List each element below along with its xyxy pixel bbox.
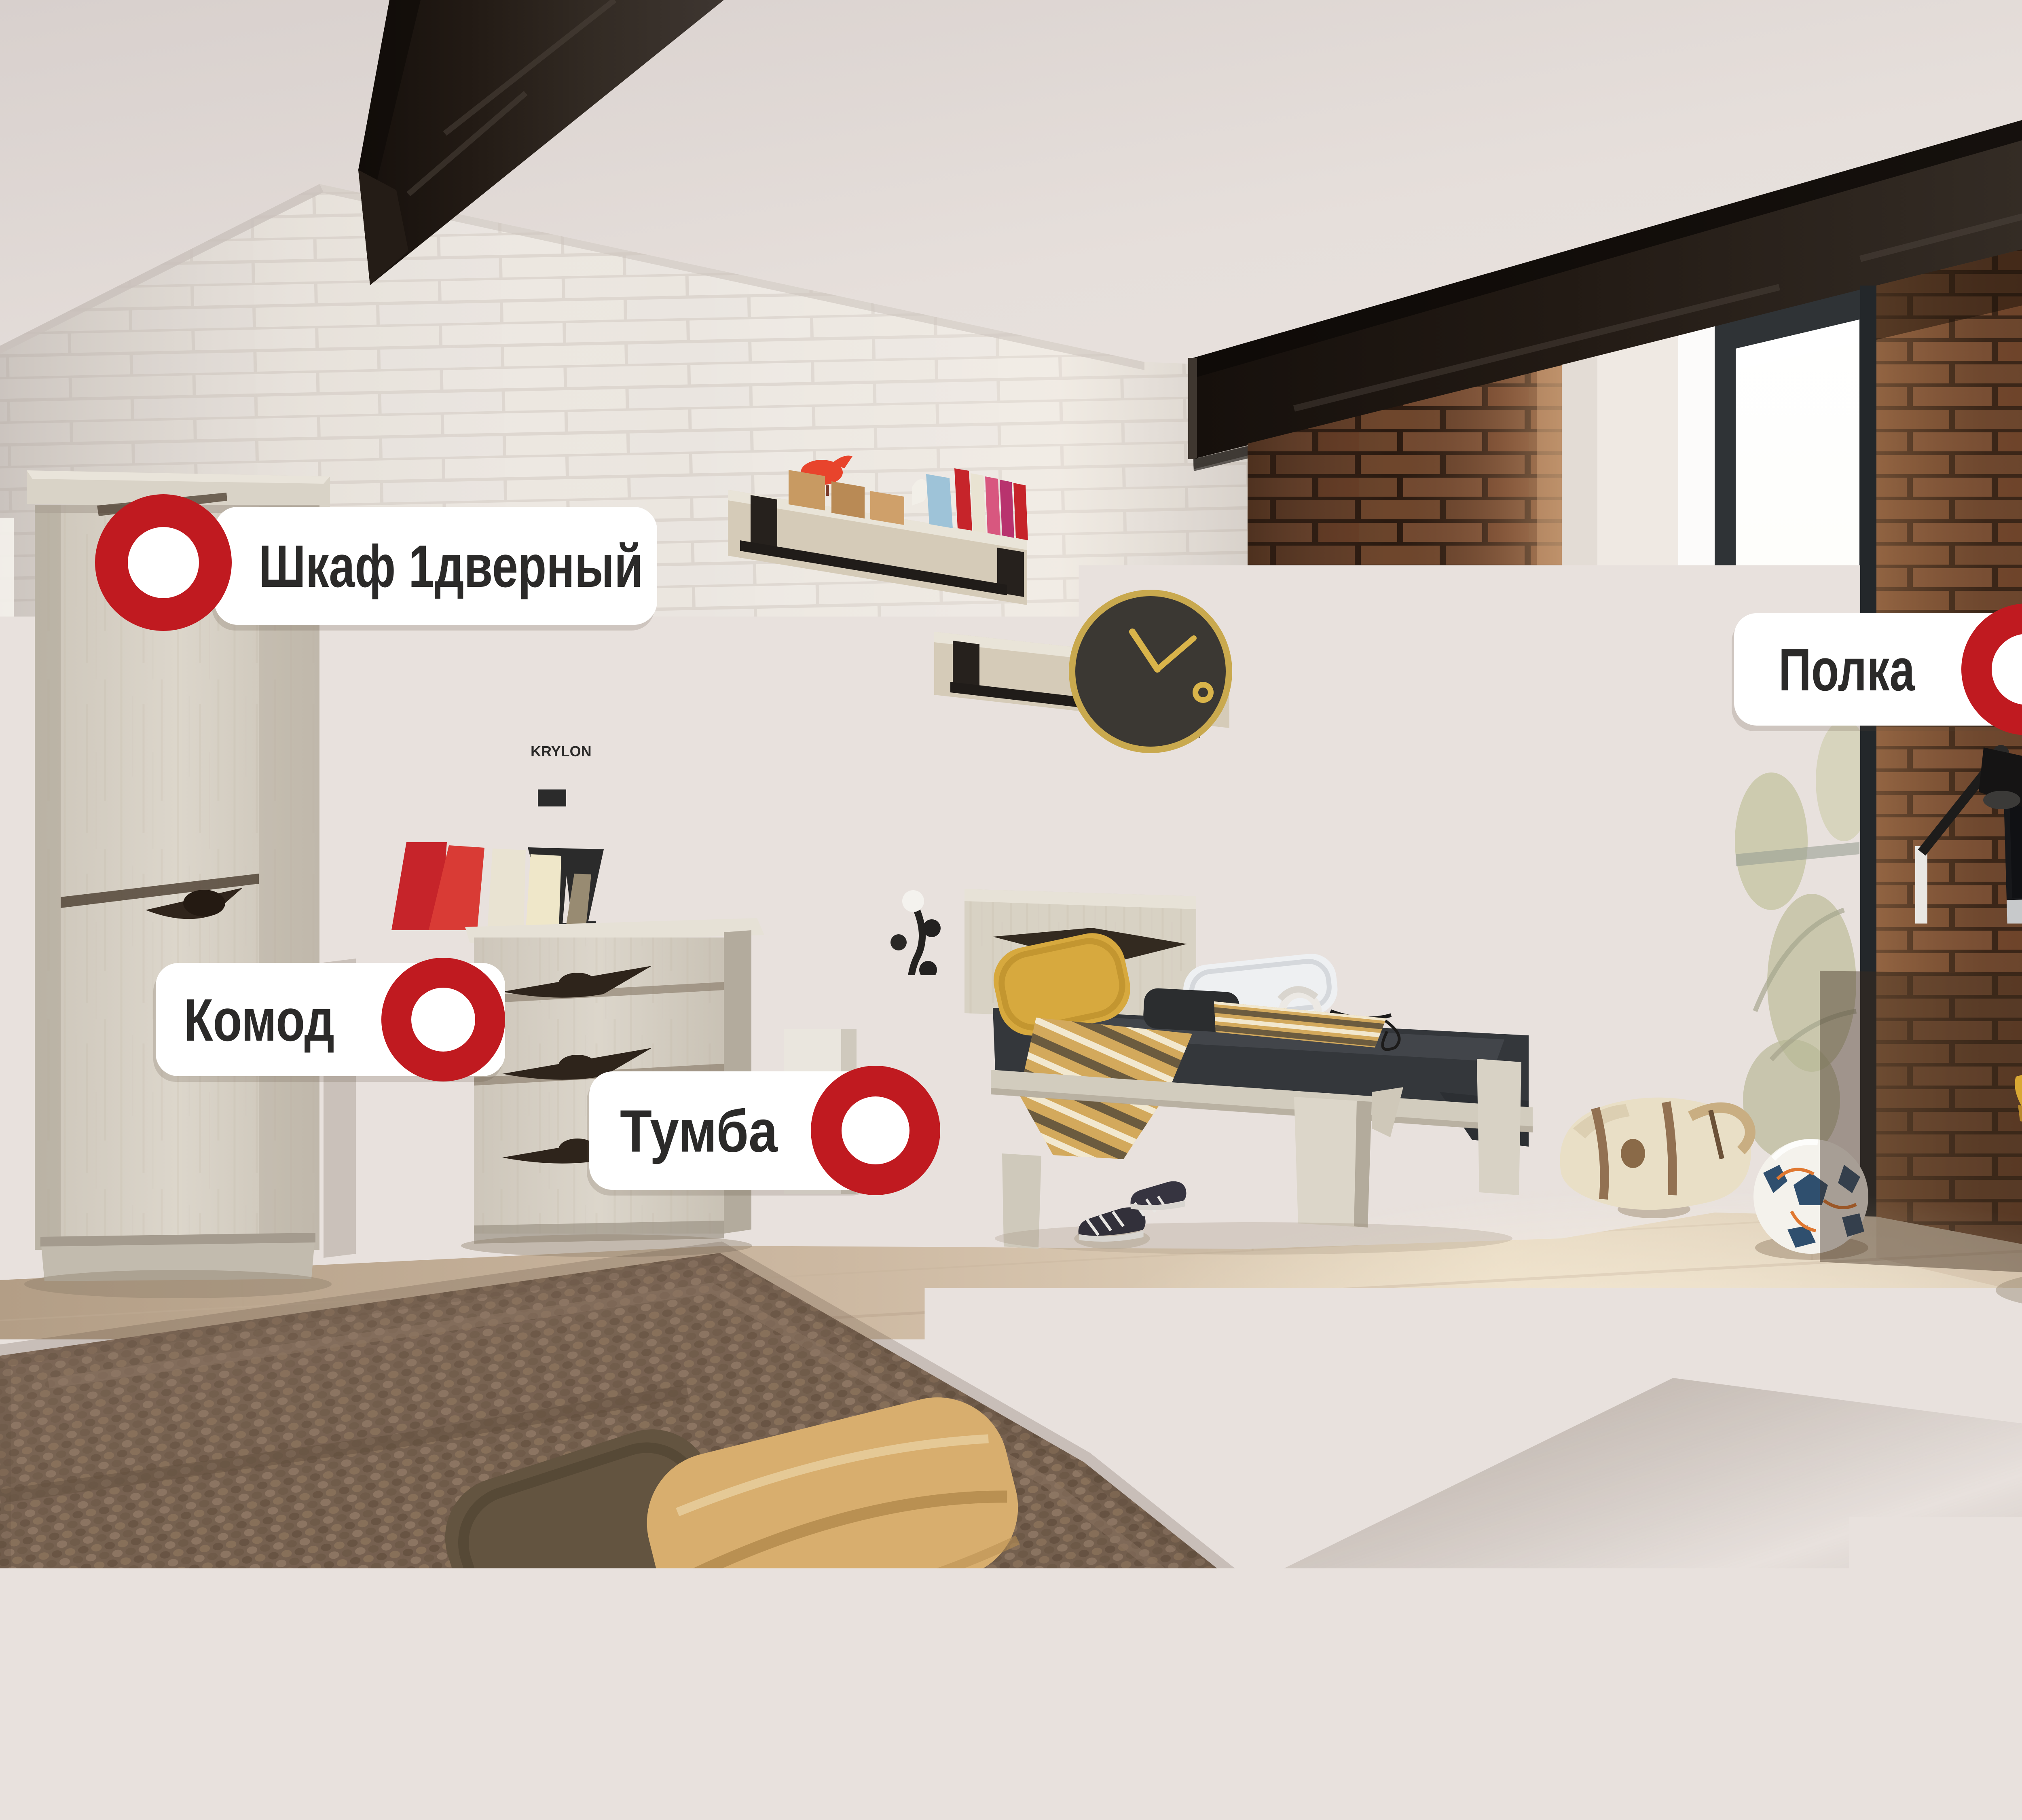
svg-text:Комод: Комод xyxy=(184,987,334,1054)
svg-text:Кровать: Кровать xyxy=(1161,1094,1353,1161)
svg-text:KRYLON: KRYLON xyxy=(531,743,592,760)
svg-text:Стол письменный: Стол письменный xyxy=(1686,998,2022,1064)
svg-text:Полка: Полка xyxy=(1779,637,1915,703)
svg-text:Тумба: Тумба xyxy=(620,1098,778,1165)
svg-text:Шкаф 1дверный: Шкаф 1дверный xyxy=(259,533,643,600)
